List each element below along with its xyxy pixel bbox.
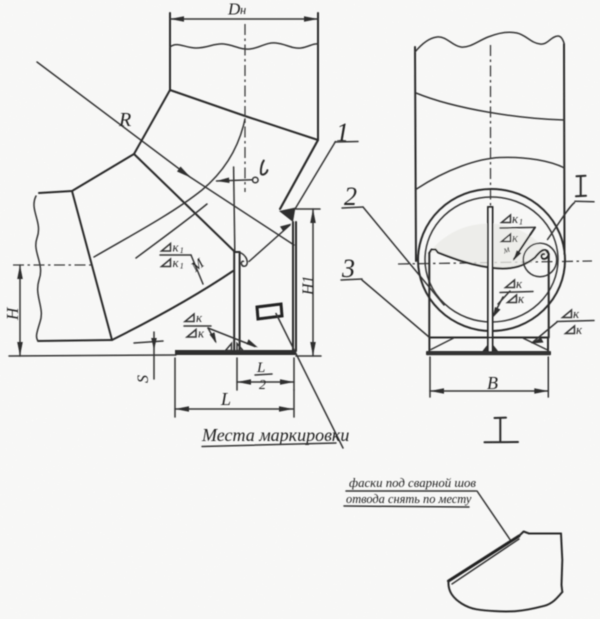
svg-text:к: к <box>173 240 180 255</box>
svg-text:R: R <box>118 109 131 131</box>
svg-text:н: н <box>240 3 246 17</box>
svg-text:2: 2 <box>259 378 266 393</box>
svg-text:к: к <box>173 255 180 270</box>
svg-text:к: к <box>512 211 519 226</box>
svg-text:к: к <box>573 306 580 321</box>
svg-text:1: 1 <box>519 218 523 227</box>
svg-text:L: L <box>256 360 265 376</box>
svg-text:к: к <box>518 291 525 306</box>
svg-text:В: В <box>487 373 498 393</box>
svg-text:H: H <box>3 306 22 321</box>
svg-text:Места маркировки: Места маркировки <box>201 425 349 445</box>
svg-text:к: к <box>516 276 523 291</box>
svg-text:к: к <box>196 310 203 325</box>
svg-text:H1: H1 <box>300 275 317 296</box>
svg-text:1: 1 <box>180 262 184 271</box>
svg-text:к: к <box>576 322 583 337</box>
svg-text:отвода снять по месту: отвода снять по месту <box>346 492 472 506</box>
svg-text:D: D <box>227 0 241 19</box>
svg-text:к: к <box>512 230 519 245</box>
svg-text:3: 3 <box>341 254 355 283</box>
svg-text:S: S <box>135 375 152 383</box>
svg-text:L: L <box>220 389 231 409</box>
svg-text:фаски под сварной шов: фаски под сварной шов <box>349 476 476 490</box>
svg-text:к: к <box>198 326 205 341</box>
svg-text:1: 1 <box>180 246 184 255</box>
